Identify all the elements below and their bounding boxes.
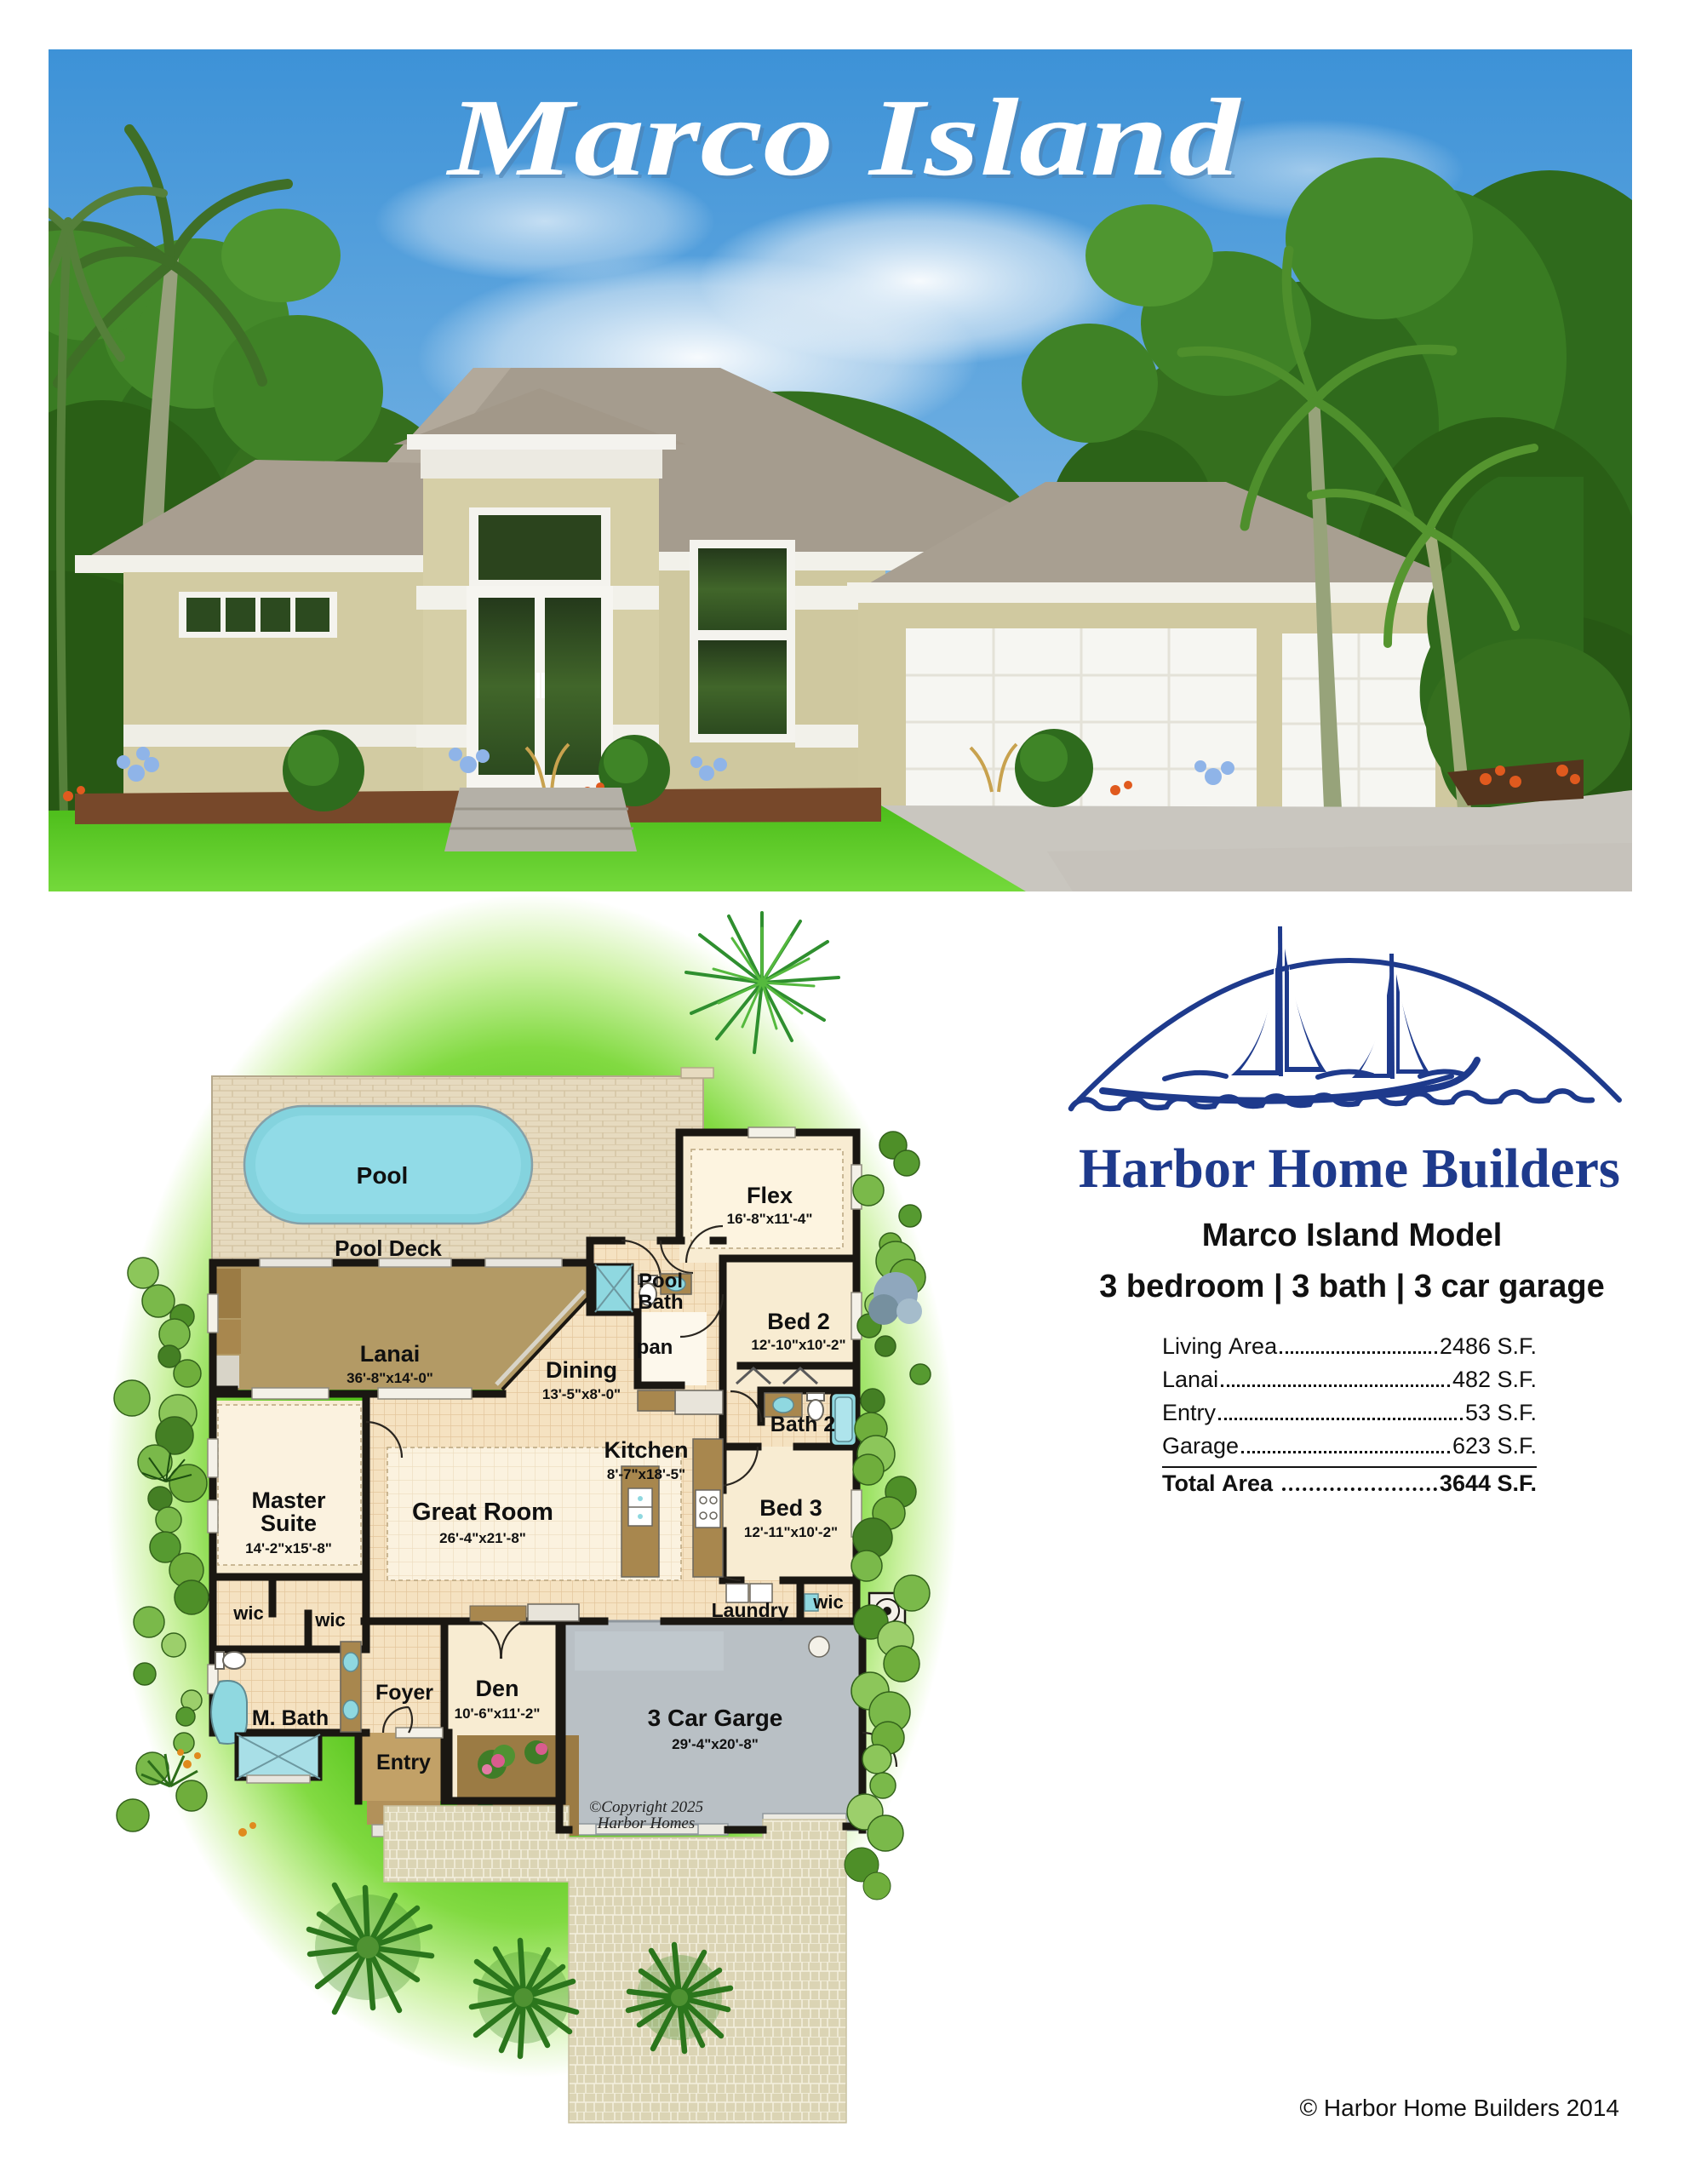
svg-text:Bath 2: Bath 2 bbox=[770, 1413, 835, 1436]
svg-text:Den: Den bbox=[475, 1676, 518, 1701]
svg-text:©Copyright 2025: ©Copyright 2025 bbox=[589, 1798, 703, 1816]
svg-text:10'-6"x11'-2": 10'-6"x11'-2" bbox=[455, 1705, 541, 1722]
svg-text:Entry: Entry bbox=[376, 1751, 431, 1774]
svg-text:Laundry: Laundry bbox=[712, 1599, 789, 1621]
svg-text:Kitchen: Kitchen bbox=[604, 1437, 688, 1463]
svg-text:12'-11"x10'-2": 12'-11"x10'-2" bbox=[744, 1524, 838, 1540]
svg-text:Dining: Dining bbox=[546, 1357, 617, 1383]
svg-text:Marco Island: Marco Island bbox=[445, 77, 1241, 199]
svg-text:29'-4"x20'-8": 29'-4"x20'-8" bbox=[672, 1736, 759, 1752]
svg-text:pan: pan bbox=[637, 1336, 673, 1359]
svg-text:wic: wic bbox=[232, 1602, 263, 1624]
svg-text:M. Bath: M. Bath bbox=[252, 1706, 329, 1730]
svg-text:Bed 2: Bed 2 bbox=[767, 1309, 830, 1334]
svg-text:Harbor Home Builders: Harbor Home Builders bbox=[1079, 1138, 1620, 1192]
svg-text:Lanai: Lanai bbox=[360, 1341, 421, 1367]
svg-text:3 Car Garge: 3 Car Garge bbox=[648, 1705, 783, 1731]
svg-text:Harbor Homes: Harbor Homes bbox=[597, 1814, 696, 1832]
svg-text:16'-8"x11'-4": 16'-8"x11'-4" bbox=[727, 1211, 813, 1227]
svg-text:26'-4"x21'-8": 26'-4"x21'-8" bbox=[439, 1530, 526, 1546]
svg-text:Bed 3: Bed 3 bbox=[759, 1495, 822, 1521]
svg-text:Foyer: Foyer bbox=[375, 1681, 433, 1705]
svg-text:Pool: Pool bbox=[357, 1162, 409, 1189]
svg-text:Pool Deck: Pool Deck bbox=[335, 1235, 442, 1261]
svg-text:Suite: Suite bbox=[261, 1510, 317, 1536]
svg-text:wic: wic bbox=[314, 1609, 345, 1631]
svg-text:8'-7"x18'-5": 8'-7"x18'-5" bbox=[607, 1466, 685, 1482]
svg-text:36'-8"x14'-0": 36'-8"x14'-0" bbox=[347, 1370, 433, 1386]
svg-text:Flex: Flex bbox=[747, 1183, 793, 1208]
svg-text:14'-2"x15'-8": 14'-2"x15'-8" bbox=[245, 1540, 332, 1556]
svg-text:Master: Master bbox=[251, 1488, 326, 1513]
svg-text:wic: wic bbox=[812, 1591, 843, 1613]
svg-text:Bath: Bath bbox=[638, 1291, 683, 1314]
svg-text:12'-10"x10'-2": 12'-10"x10'-2" bbox=[751, 1337, 845, 1353]
svg-text:13'-5"x8'-0": 13'-5"x8'-0" bbox=[542, 1386, 621, 1402]
svg-text:Great Room: Great Room bbox=[412, 1499, 553, 1526]
svg-text:Pool: Pool bbox=[639, 1270, 683, 1293]
